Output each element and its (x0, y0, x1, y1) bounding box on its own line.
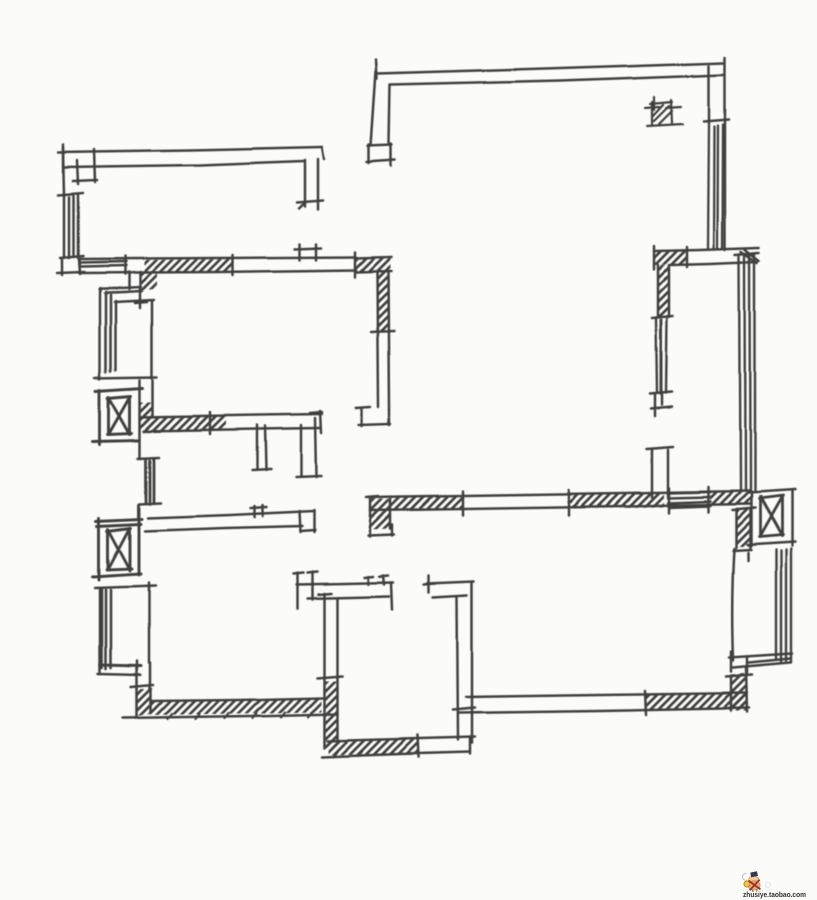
svg-text:zhusiye.taobao.com: zhusiye.taobao.com (743, 890, 806, 899)
